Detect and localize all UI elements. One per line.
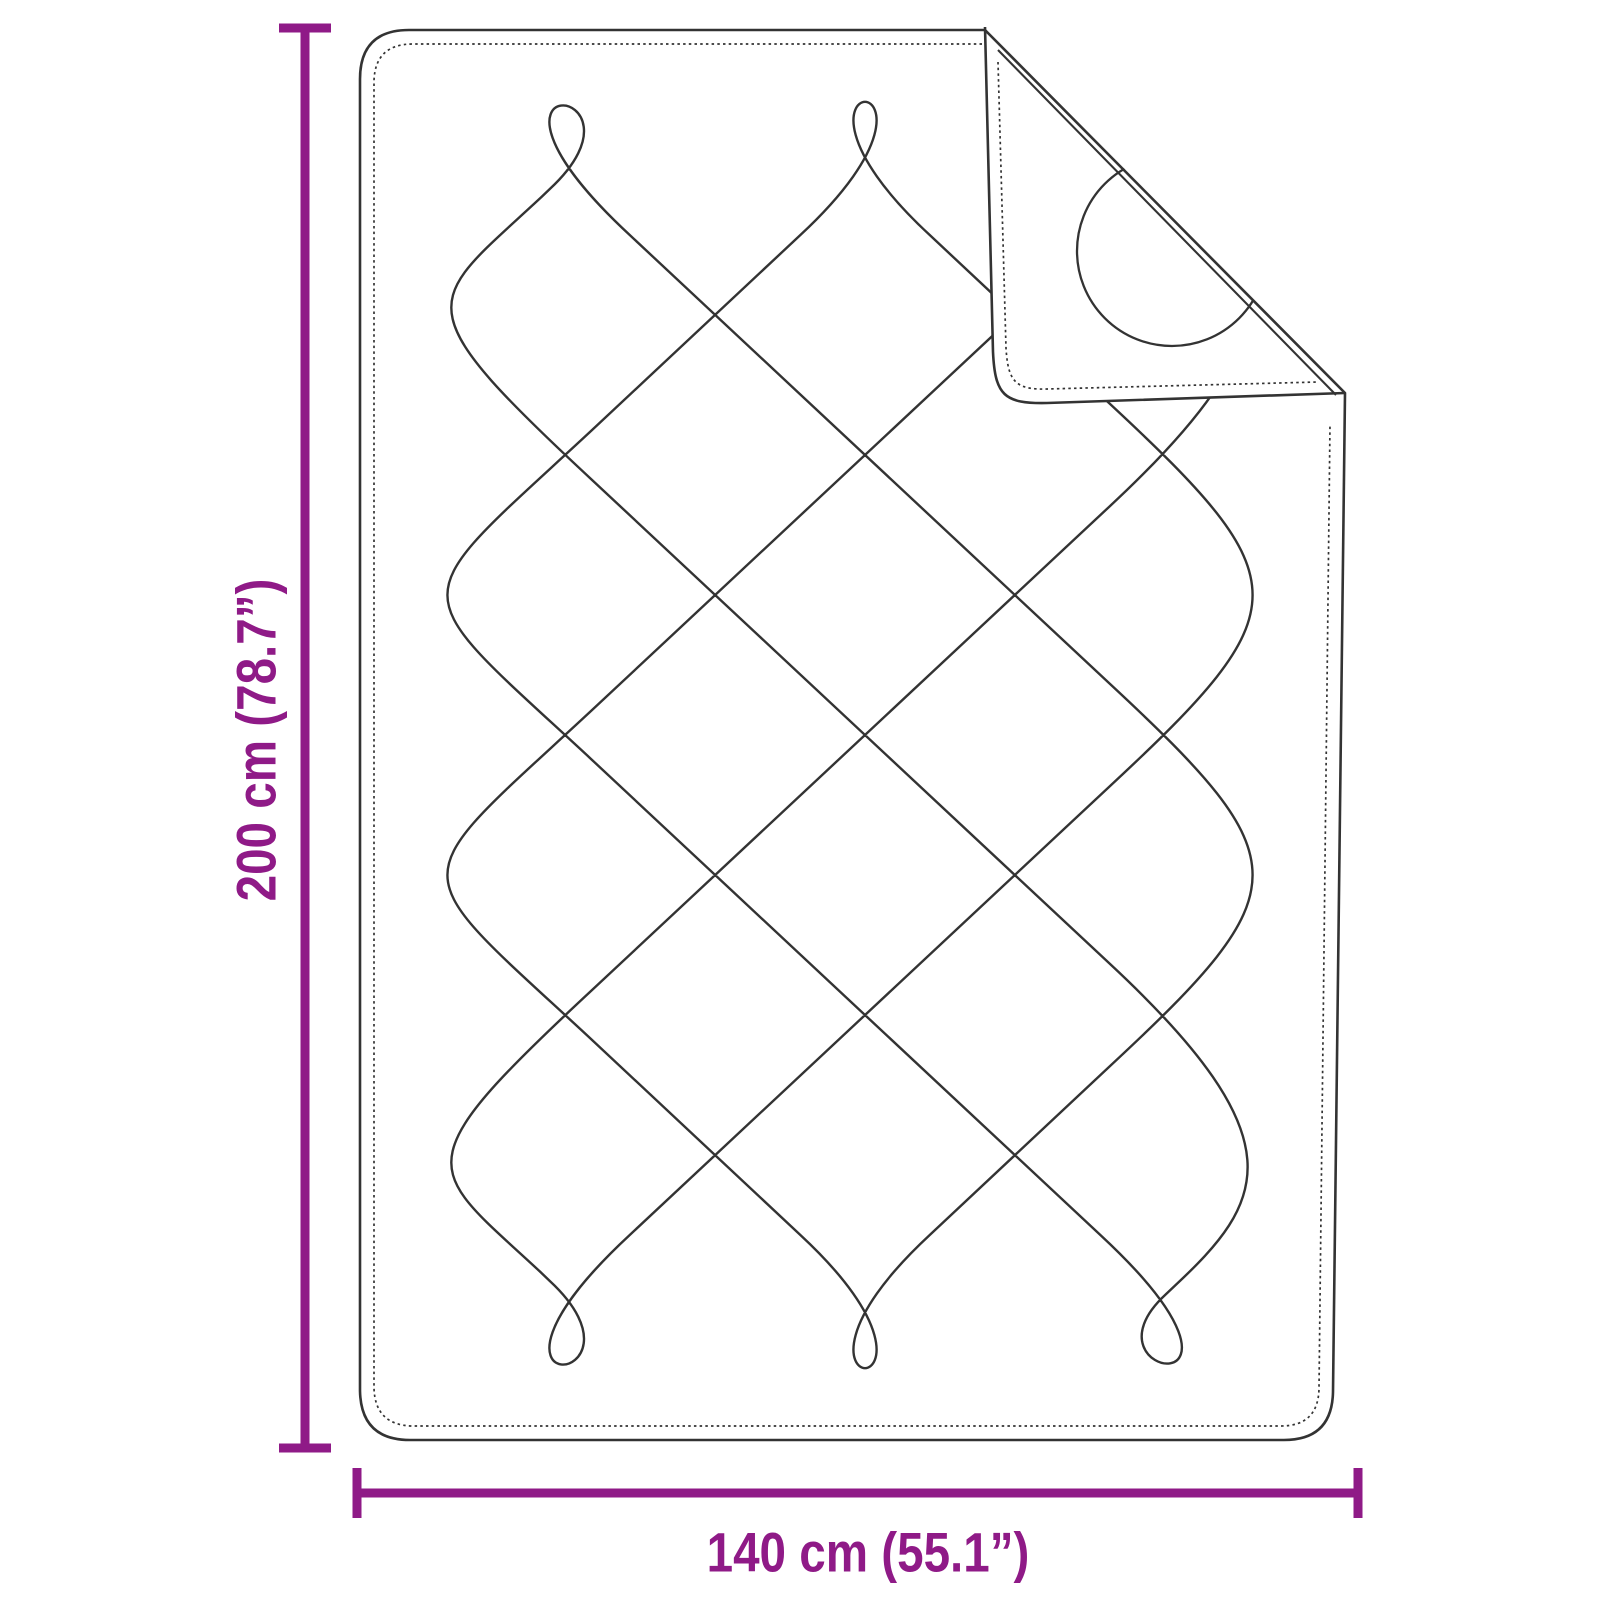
height-dimension-label: 200 cm (78.7”) (224, 579, 289, 902)
width-dimension-line (357, 1468, 1358, 1518)
width-dimension-label: 140 cm (55.1”) (707, 1520, 1030, 1585)
blanket-outline (360, 30, 1345, 1440)
product-dimension-diagram: 200 cm (78.7”) 140 cm (55.1”) (0, 0, 1600, 1600)
